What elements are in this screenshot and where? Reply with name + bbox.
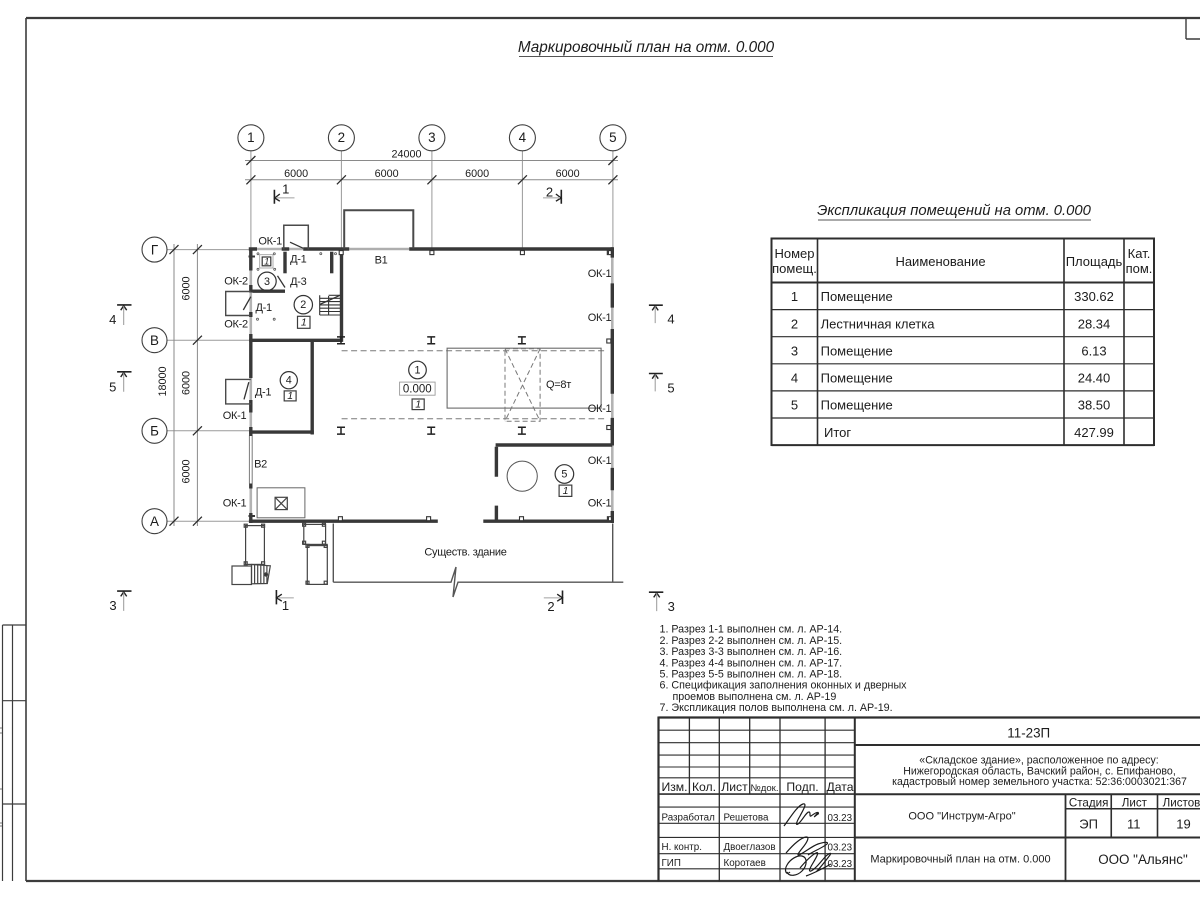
svg-text:Наименование: Наименование: [895, 254, 985, 269]
svg-text:Д-1: Д-1: [256, 302, 273, 314]
svg-text:4: 4: [286, 375, 292, 387]
svg-text:Разработал: Разработал: [662, 813, 716, 824]
svg-text:3: 3: [109, 598, 116, 613]
svg-text:03.23: 03.23: [828, 859, 853, 870]
svg-text:330.62: 330.62: [1074, 289, 1114, 304]
svg-text:6000: 6000: [465, 168, 489, 180]
svg-text:2. Разрез 2-2 выполнен см. л.: 2. Разрез 2-2 выполнен см. л. АР-15.: [660, 635, 843, 647]
svg-text:ОК-1: ОК-1: [588, 455, 612, 467]
svg-text:Д-1: Д-1: [290, 254, 307, 266]
svg-text:ОК-1: ОК-1: [588, 268, 612, 280]
svg-text:Изм.: Изм.: [661, 780, 687, 794]
svg-text:ОК-1: ОК-1: [588, 497, 612, 509]
svg-text:Дата: Дата: [827, 780, 854, 794]
svg-text:ОК-2: ОК-2: [224, 276, 248, 288]
svg-text:Листов: Листов: [1163, 797, 1200, 810]
svg-text:38.50: 38.50: [1078, 398, 1111, 413]
svg-text:ГИП: ГИП: [662, 858, 681, 869]
svg-text:пом.: пом.: [1126, 261, 1153, 276]
svg-text:3: 3: [428, 130, 435, 145]
svg-text:5: 5: [109, 379, 116, 394]
svg-text:2: 2: [791, 317, 798, 332]
svg-text:19: 19: [1176, 817, 1190, 832]
svg-text:3: 3: [264, 276, 270, 288]
svg-text:ОК-1: ОК-1: [588, 403, 612, 415]
svg-text:А: А: [150, 514, 159, 529]
svg-text:7. Экспликация полов выполнена: 7. Экспликация полов выполнена см. л. АР…: [660, 702, 893, 714]
svg-text:11: 11: [1127, 817, 1141, 832]
svg-text:1: 1: [301, 317, 307, 329]
svg-text:6000: 6000: [556, 168, 580, 180]
svg-text:4: 4: [109, 312, 116, 327]
svg-text:1: 1: [287, 390, 293, 402]
svg-text:Стадия: Стадия: [1069, 797, 1109, 810]
svg-text:2: 2: [546, 185, 553, 200]
svg-text:Лист: Лист: [1122, 797, 1148, 810]
svg-text:Помещение: Помещение: [821, 398, 893, 413]
svg-text:3: 3: [791, 344, 798, 359]
svg-text:Экспликация помещений на отм.: Экспликация помещений на отм. 0.000: [817, 203, 1091, 219]
svg-text:1: 1: [415, 399, 421, 411]
svg-text:03.23: 03.23: [828, 813, 853, 824]
svg-text:ОК-2: ОК-2: [224, 319, 248, 331]
svg-text:Н. контр.: Н. контр.: [662, 842, 702, 853]
svg-text:24.40: 24.40: [1078, 371, 1111, 386]
svg-text:5: 5: [561, 469, 567, 481]
svg-text:3. Разрез 3-3 выполнен см. л.: 3. Разрез 3-3 выполнен см. л. АР-16.: [660, 646, 843, 658]
svg-text:проемов выполнена см. л. АР-19: проемов выполнена см. л. АР-19: [673, 691, 837, 703]
svg-text:Кол.: Кол.: [692, 780, 716, 794]
svg-text:0.000: 0.000: [403, 383, 432, 395]
svg-text:ООО "Альянс": ООО "Альянс": [1098, 852, 1188, 867]
svg-text:В1: В1: [375, 255, 388, 267]
svg-text:28.34: 28.34: [1078, 317, 1111, 332]
svg-text:Д-1: Д-1: [255, 387, 272, 399]
svg-text:1: 1: [264, 256, 269, 266]
svg-text:кадастровый номер земельного у: кадастровый номер земельного участка: 52…: [892, 776, 1187, 788]
svg-text:6. Спецификация заполнения око: 6. Спецификация заполнения оконных и две…: [660, 680, 908, 692]
svg-text:Решетова: Решетова: [724, 813, 769, 824]
svg-text:Д-3: Д-3: [290, 276, 307, 288]
svg-text:1. Разрез 1-1 выполнен см. л.: 1. Разрез 1-1 выполнен см. л. АР-14.: [660, 624, 843, 636]
svg-text:2: 2: [547, 599, 554, 614]
svg-text:18000: 18000: [157, 366, 169, 396]
svg-text:В: В: [150, 333, 159, 348]
svg-text:1: 1: [791, 289, 798, 304]
svg-text:Итог: Итог: [824, 425, 851, 440]
svg-text:№док.: №док.: [750, 783, 778, 794]
svg-text:Подп.: Подп.: [786, 780, 818, 794]
svg-text:1: 1: [563, 485, 569, 497]
svg-text:Номер: Номер: [774, 246, 814, 261]
svg-text:Двоеглазов: Двоеглазов: [724, 842, 776, 853]
svg-text:Маркировочный план на отм. 0.0: Маркировочный план на отм. 0.000: [518, 39, 775, 56]
svg-text:6000: 6000: [181, 459, 193, 483]
svg-text:5: 5: [609, 130, 616, 145]
svg-text:Помещение: Помещение: [821, 344, 893, 359]
svg-text:1: 1: [282, 182, 289, 197]
svg-text:Коротаев: Коротаев: [724, 858, 766, 869]
svg-text:03.23: 03.23: [828, 842, 853, 853]
svg-text:ЭП: ЭП: [1079, 817, 1098, 832]
svg-text:Площадь: Площадь: [1066, 254, 1123, 269]
svg-text:5. Разрез 5-5 выполнен см. л.: 5. Разрез 5-5 выполнен см. л. АР-18.: [660, 669, 843, 681]
svg-text:1: 1: [282, 598, 289, 613]
svg-text:помещ.: помещ.: [772, 261, 817, 276]
svg-text:6000: 6000: [181, 276, 193, 300]
svg-text:Маркировочный план на отм. 0.0: Маркировочный план на отм. 0.000: [870, 854, 1050, 866]
svg-text:ОК-1: ОК-1: [588, 312, 612, 324]
svg-text:ООО "Инструм-Агро": ООО "Инструм-Агро": [908, 811, 1015, 823]
svg-text:Помещение: Помещение: [821, 371, 893, 386]
svg-text:4: 4: [667, 311, 674, 326]
svg-text:Лестничная клетка: Лестничная клетка: [821, 317, 936, 332]
svg-text:Г: Г: [151, 242, 158, 257]
svg-text:5: 5: [667, 380, 674, 395]
svg-text:4: 4: [791, 371, 798, 386]
svg-text:5: 5: [791, 398, 798, 413]
svg-text:Q=8т: Q=8т: [546, 379, 571, 391]
svg-text:Лист: Лист: [721, 780, 748, 794]
svg-text:В2: В2: [254, 458, 267, 470]
svg-text:ОК-1: ОК-1: [258, 236, 282, 248]
svg-text:Помещение: Помещение: [821, 289, 893, 304]
svg-text:427.99: 427.99: [1074, 425, 1114, 440]
svg-text:ОК-1: ОК-1: [223, 497, 247, 509]
svg-text:Кат.: Кат.: [1128, 246, 1151, 261]
svg-text:4: 4: [519, 130, 527, 145]
svg-text:6000: 6000: [375, 168, 399, 180]
svg-text:1: 1: [414, 365, 420, 377]
svg-text:6000: 6000: [181, 371, 193, 395]
svg-text:2: 2: [338, 130, 345, 145]
svg-text:11-23П: 11-23П: [1007, 726, 1050, 741]
svg-text:24000: 24000: [391, 149, 421, 161]
svg-text:4. Разрез 4-4 выполнен см. л.: 4. Разрез 4-4 выполнен см. л. АР-17.: [660, 657, 843, 669]
svg-text:6000: 6000: [284, 168, 308, 180]
svg-text:Б: Б: [150, 424, 159, 439]
svg-text:ОК-1: ОК-1: [223, 410, 247, 422]
svg-text:2: 2: [300, 299, 306, 311]
svg-text:6.13: 6.13: [1081, 344, 1106, 359]
svg-text:1: 1: [247, 130, 254, 145]
svg-text:3: 3: [668, 599, 675, 614]
svg-text:Существ. здание: Существ. здание: [424, 547, 506, 559]
